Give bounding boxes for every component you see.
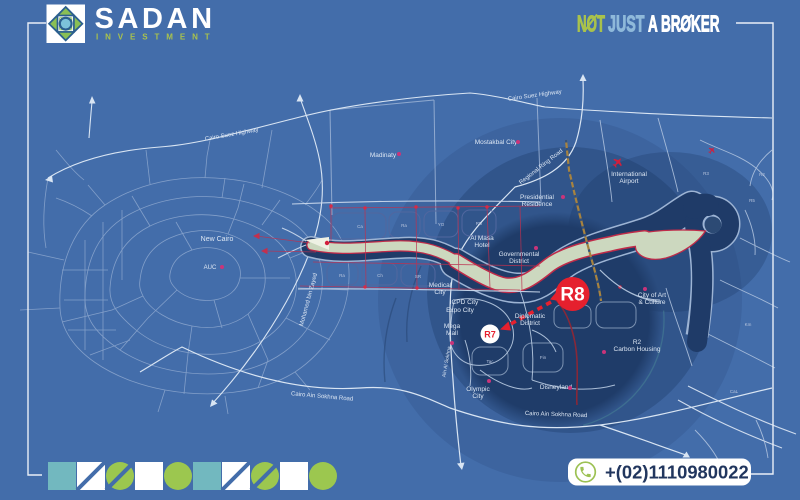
svg-text:New Cairo: New Cairo [201,236,234,243]
svg-text:Residence: Residence [522,201,553,208]
svg-text:Mostakbal City: Mostakbal City [475,139,518,146]
svg-text:+(02)1110980022: +(02)1110980022 [605,462,749,483]
svg-text:YO: YO [438,222,445,227]
svg-text:District: District [509,258,529,265]
svg-text:R2: R2 [633,339,642,346]
svg-text:SR: SR [415,274,422,279]
svg-text:JUST: JUST [608,11,645,37]
svg-text:Tac: Tac [486,359,494,364]
svg-text:Mall: Mall [446,330,458,337]
svg-text:Hotel: Hotel [474,242,490,249]
svg-text:Al Masa: Al Masa [470,235,494,242]
svg-text:City of Art: City of Art [638,292,666,299]
svg-text:Fin: Fin [540,355,547,360]
svg-text:AUC: AUC [204,265,217,271]
svg-text:Carbon Housing: Carbon Housing [614,346,661,353]
svg-text:Mega: Mega [444,323,461,330]
svg-text:& Culture: & Culture [638,299,665,306]
svg-text:District: District [520,320,540,327]
svg-text:Madinaty: Madinaty [370,152,397,159]
svg-text:R3: R3 [703,171,709,176]
svg-text:R7: R7 [484,330,496,340]
svg-text:Airport: Airport [619,178,638,185]
svg-text:Presidential: Presidential [520,194,555,201]
svg-text:Disneyland: Disneyland [540,384,573,391]
svg-text:Diplomatic: Diplomatic [515,313,546,320]
svg-text:RD: RD [476,221,483,226]
svg-text:Medical: Medical [429,282,452,289]
svg-text:SADAN: SADAN [95,3,216,35]
svg-text:Ra: Ra [339,273,345,278]
svg-text:Expo City: Expo City [446,307,475,314]
svg-text:Ch: Ch [377,273,383,278]
svg-text:City: City [434,289,446,296]
svg-text:R5: R5 [749,198,755,203]
svg-text:International: International [611,171,647,178]
svg-text:R2: R2 [759,172,765,177]
svg-text:ICPD City: ICPD City [450,299,479,306]
svg-text:INVESTMENT: INVESTMENT [96,33,217,42]
svg-text:Km: Km [745,322,752,327]
svg-text:CaL: CaL [730,389,739,394]
svg-text:Ra: Ra [401,223,407,228]
svg-text:City: City [472,393,484,400]
svg-text:Olympic: Olympic [466,386,490,393]
svg-text:R8: R8 [560,285,584,306]
svg-text:Ca: Ca [357,224,363,229]
svg-text:Governmental: Governmental [499,251,540,258]
